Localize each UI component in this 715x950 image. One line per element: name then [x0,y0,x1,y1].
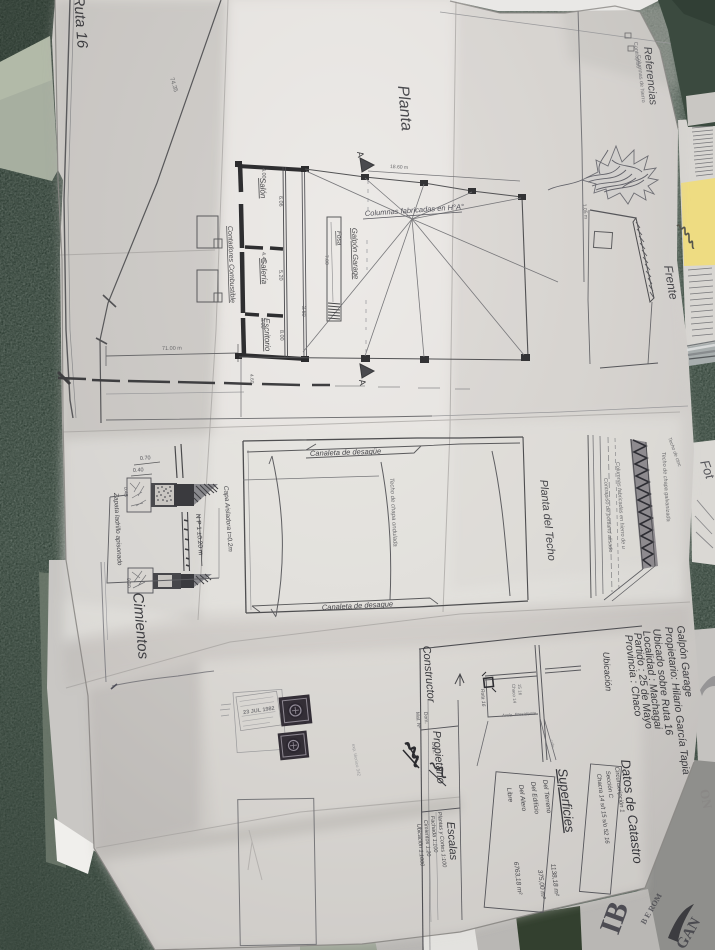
svg-text:15 16: 15 16 [517,684,523,696]
svg-text:Galpón Garage: Galpón Garage [350,228,361,280]
svg-text:3.60: 3.60 [300,306,306,317]
svg-text:0.70: 0.70 [140,455,151,462]
svg-text:8.00: 8.00 [278,330,284,341]
svg-text:Fosa: Fosa [335,231,343,246]
svg-text:4.00: 4.00 [260,168,266,179]
svg-text:71.00 m: 71.00 m [162,346,182,352]
svg-text:4.60: 4.60 [248,374,255,384]
svg-text:4.46: 4.46 [260,252,266,263]
svg-text:7.00: 7.00 [323,255,329,265]
svg-text:0.40: 0.40 [133,467,144,474]
svg-text:Dom.: Dom. [430,742,437,754]
svg-text:Dom.: Dom. [422,712,429,724]
svg-text:6.06: 6.06 [277,196,283,207]
svg-text:3.00: 3.00 [259,318,265,329]
svg-text:0.45: 0.45 [122,487,129,497]
svg-text:0.30: 0.30 [125,578,132,588]
svg-text:5.20: 5.20 [277,270,283,281]
svg-text:Ruta 16: Ruta 16 [479,689,486,707]
svg-text:Salón: Salón [258,178,268,199]
svg-text:18.60 m: 18.60 m [390,164,408,171]
